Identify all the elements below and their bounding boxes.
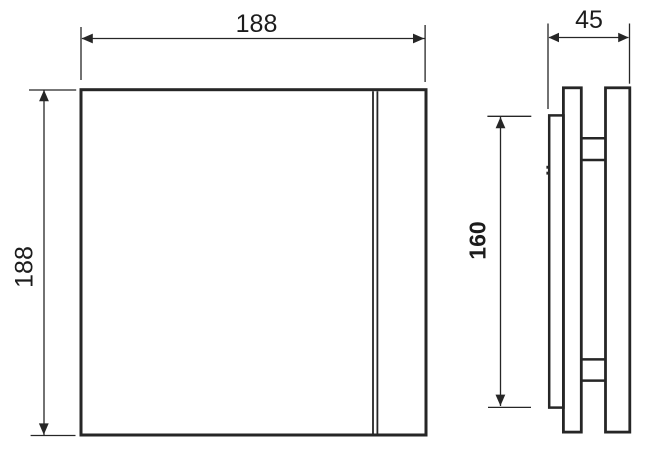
svg-text:188: 188 (236, 10, 278, 38)
svg-text:45: 45 (575, 6, 603, 34)
svg-text:160: 160 (465, 221, 491, 259)
svg-text:188: 188 (11, 246, 39, 288)
